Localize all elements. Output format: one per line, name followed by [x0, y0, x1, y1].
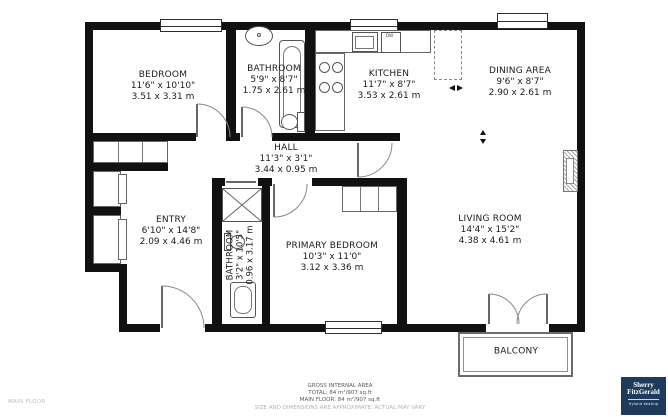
room-label-bathroom2: BATHROOM 3'2" x 10'5" 0.96 x 3.17 m — [226, 225, 257, 284]
room-label-kitchen: KITCHEN 11'7" x 8'7" 3.53 x 2.61 m — [358, 69, 421, 101]
kitchen-sink-basin — [355, 36, 374, 49]
main-floor-area: MAIN FLOOR: 84 m²/907 sq.ft — [230, 397, 450, 404]
primary-bedroom-window — [325, 321, 382, 334]
fireplace-inner — [566, 158, 574, 184]
room-label-balcony: BALCONY — [494, 347, 538, 358]
stove-burner — [332, 82, 343, 93]
floor-name-label: MAIN FLOOR — [8, 399, 46, 405]
brand-logo: Sherry FitzGerald Hyland Keating — [621, 377, 666, 415]
entry-door-arc — [162, 286, 204, 328]
balcony-door-opening — [486, 324, 549, 332]
shower — [222, 188, 262, 222]
wall-bathroom2-right — [262, 186, 270, 332]
toilet-tank — [297, 112, 305, 132]
wall-right — [577, 22, 585, 332]
hall-living-door-arc — [358, 143, 392, 177]
stove-burner — [319, 62, 330, 73]
wall-kitchen-bottom — [272, 133, 400, 141]
wall-bedroom-bathroom — [226, 22, 236, 141]
wall-hall-bottom-c — [312, 178, 407, 186]
bathroom-sink-faucet — [257, 33, 261, 37]
room-label-bedroom: BEDROOM 11'6" x 10'10" 3.51 x 3.31 m — [131, 70, 195, 102]
room-label-primary-bedroom: PRIMARY BEDROOM 10'3" x 11'0" 3.12 x 3.3… — [286, 241, 378, 273]
entry-closet-2 — [93, 215, 121, 264]
brand-name-line2: FitzGerald — [621, 389, 666, 396]
floor-plan-canvas: DW — [0, 0, 668, 417]
room-label-bathroom: BATHROOM 5'9" x 8'7" 1.75 x 2.61 m — [243, 64, 306, 96]
dishwasher-label: DW — [386, 33, 393, 38]
toilet-bowl — [281, 114, 298, 130]
entry-door-opening — [160, 324, 205, 332]
gross-internal-area-title: GROSS INTERNAL AREA — [230, 383, 450, 390]
stove-burner — [319, 82, 330, 93]
dimension-marker — [480, 130, 486, 144]
disclaimer-text: SIZE AND DIMENSIONS ARE APPROXIMATE, ACT… — [230, 405, 450, 412]
closet-door-leaf-2 — [118, 219, 127, 260]
wall-left — [85, 22, 93, 272]
wall-bedroom-bottom-a — [85, 133, 196, 141]
wall-bathroom-kitchen — [305, 22, 315, 141]
bathtub2-inner — [234, 286, 252, 314]
fridge-dashed-outline — [434, 30, 462, 80]
wall-primary-right — [397, 178, 407, 332]
room-label-living-room: LIVING ROOM 14'4" x 15'2" 4.38 x 4.61 m — [458, 214, 521, 246]
stove-burner — [332, 62, 343, 73]
wall-closet-separator — [93, 207, 121, 215]
wall-bathroom2-left — [212, 178, 222, 332]
total-area: TOTAL: 84 m²/907 sq.ft — [230, 390, 450, 397]
bedroom-window — [160, 19, 222, 32]
french-door-arc-right — [517, 294, 547, 324]
room-label-dining-area: DINING AREA 9'6" x 8'7" 2.90 x 2.61 m — [489, 66, 552, 98]
wall-closet-bottom — [85, 163, 168, 171]
brand-subtitle: Hyland Keating — [621, 402, 666, 406]
area-summary: GROSS INTERNAL AREA TOTAL: 84 m²/907 sq.… — [230, 383, 450, 412]
room-label-entry: ENTRY 6'10" x 14'8" 2.09 x 4.46 m — [140, 215, 203, 247]
closet-door-leaf-1 — [118, 174, 127, 204]
primary-bedroom-closet — [342, 186, 397, 212]
room-label-hall: HALL 11'3" x 3'1" 3.44 x 0.95 m — [255, 143, 318, 175]
bathroom-door-arc — [242, 107, 272, 137]
dimension-marker — [449, 85, 463, 91]
wall-hall-bottom-b — [258, 178, 272, 186]
entry-closet-1 — [93, 171, 121, 207]
wall-step-vertical — [119, 264, 127, 332]
bedroom-closet — [93, 141, 168, 163]
primary-door-arc — [274, 184, 307, 217]
dining-window — [497, 13, 548, 29]
french-door-arc-left — [489, 294, 519, 324]
brand-divider — [628, 399, 660, 400]
